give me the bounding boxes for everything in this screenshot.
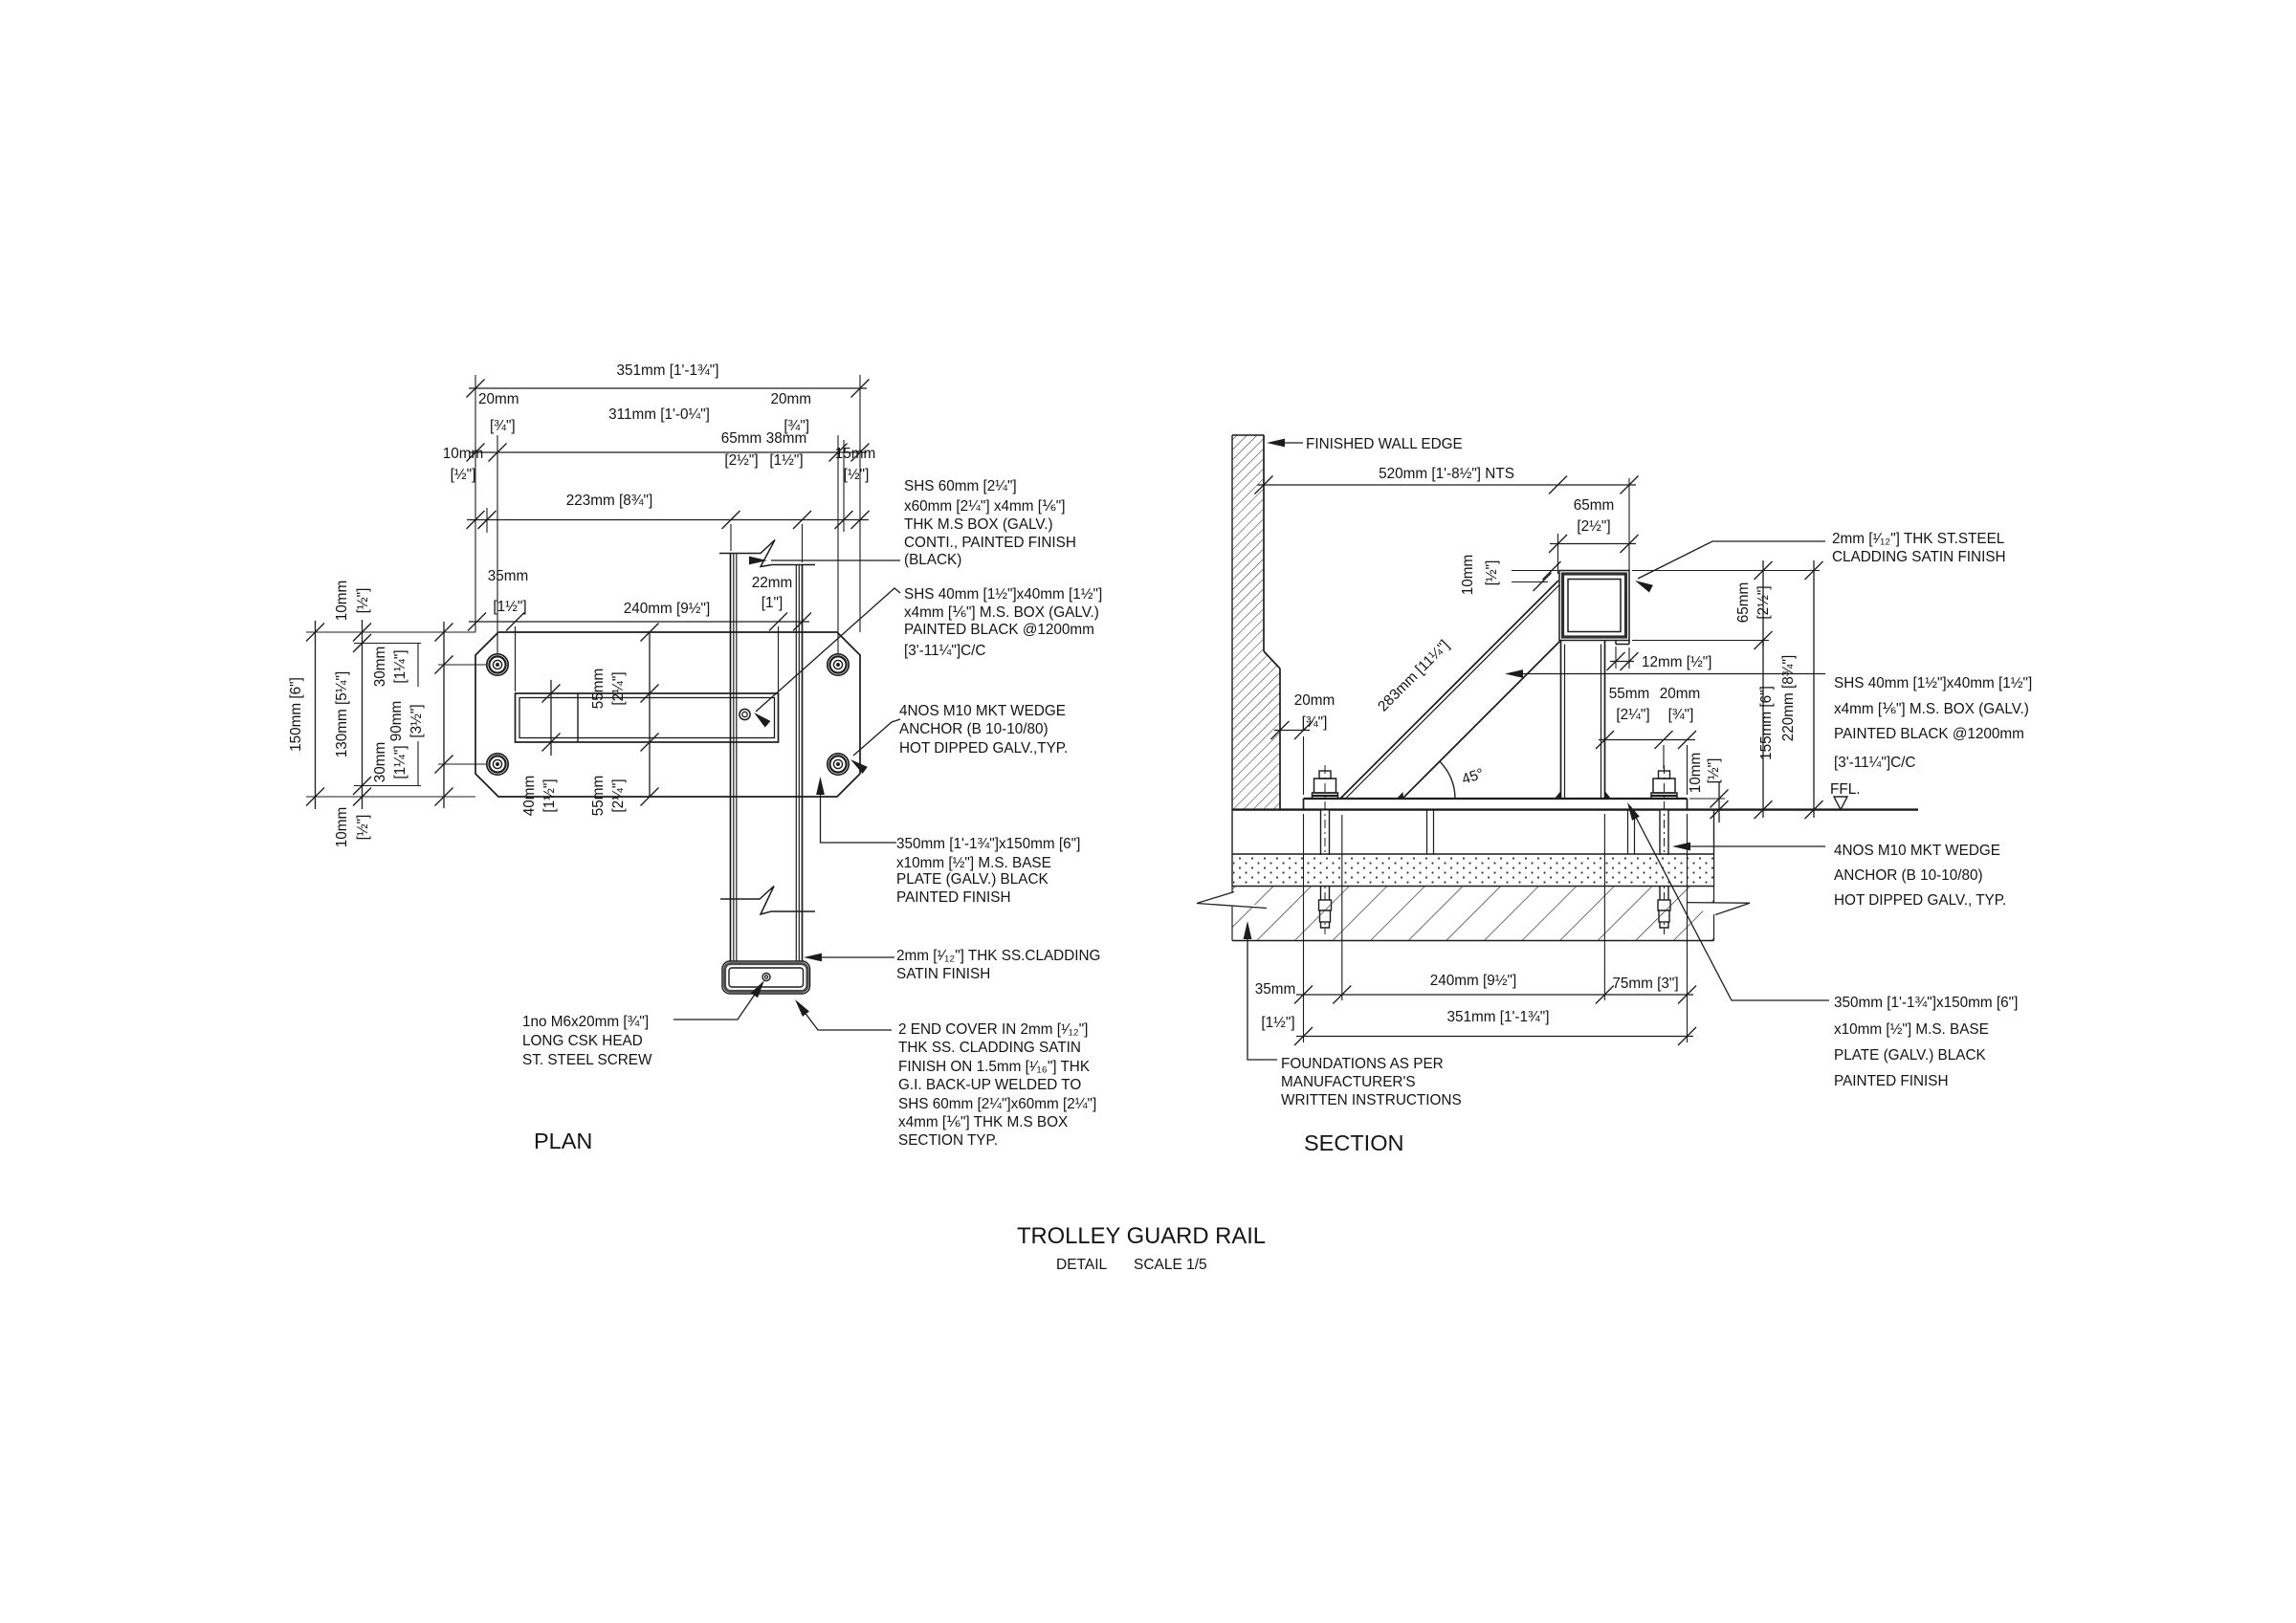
svg-text:220mm [8¾"]: 220mm [8¾"]: [1780, 655, 1797, 741]
svg-text:[¾"]: [¾"]: [1302, 714, 1328, 731]
svg-text:THK M.S BOX (GALV.): THK M.S BOX (GALV.): [904, 516, 1053, 533]
svg-text:SHS 40mm [1½"]x40mm [1½"]: SHS 40mm [1½"]x40mm [1½"]: [1834, 675, 2032, 691]
svg-text:[3'-11¼"]C/C: [3'-11¼"]C/C: [904, 643, 985, 659]
svg-text:30mm: 30mm: [372, 647, 388, 688]
svg-text:[½"]: [½"]: [451, 467, 476, 483]
svg-text:[½"]: [½"]: [1706, 758, 1722, 784]
svg-text:[½"]: [½"]: [1484, 560, 1500, 586]
svg-text:LONG CSK HEAD: LONG CSK HEAD: [522, 1033, 643, 1049]
svg-text:FINISH ON 1.5mm [¹⁄₁₆"] THK: FINISH ON 1.5mm [¹⁄₁₆"] THK: [898, 1059, 1091, 1075]
svg-text:351mm [1'-1¾"]: 351mm [1'-1¾"]: [1447, 1009, 1550, 1025]
svg-text:[1½"]: [1½"]: [541, 779, 558, 812]
svg-text:35mm: 35mm: [1255, 981, 1296, 998]
svg-text:PAINTED BLACK @1200mm: PAINTED BLACK @1200mm: [904, 622, 1094, 638]
svg-text:20mm: 20mm: [1294, 692, 1336, 709]
svg-text:10mm: 10mm: [334, 807, 350, 848]
svg-text:130mm [5¼"]: 130mm [5¼"]: [334, 671, 350, 757]
svg-text:350mm [1'-1¾"]x150mm [6"]: 350mm [1'-1¾"]x150mm [6"]: [1834, 995, 2018, 1011]
svg-text:[3½"]: [3½"]: [408, 704, 425, 737]
svg-text:520mm [1'-8½"] NTS: 520mm [1'-8½"] NTS: [1379, 466, 1514, 482]
svg-text:THK SS. CLADDING SATIN: THK SS. CLADDING SATIN: [898, 1040, 1081, 1056]
svg-text:1no M6x20mm [¾"]: 1no M6x20mm [¾"]: [522, 1014, 649, 1030]
svg-text:HOT DIPPED GALV., TYP.: HOT DIPPED GALV., TYP.: [1834, 892, 2006, 909]
svg-text:150mm [6"]: 150mm [6"]: [288, 677, 304, 752]
svg-text:MANUFACTURER'S: MANUFACTURER'S: [1281, 1074, 1416, 1090]
svg-text:[1¼"]: [1¼"]: [392, 649, 408, 683]
svg-text:TROLLEY GUARD RAIL: TROLLEY GUARD RAIL: [1017, 1223, 1266, 1249]
svg-text:ANCHOR (B 10-10/80): ANCHOR (B 10-10/80): [1834, 867, 1983, 884]
svg-text:SECTION: SECTION: [1304, 1130, 1403, 1155]
svg-text:2mm [¹⁄₁₂"] THK ST.STEEL: 2mm [¹⁄₁₂"] THK ST.STEEL: [1832, 531, 2004, 547]
svg-text:x60mm [2¼"] x4mm [⅙"]: x60mm [2¼"] x4mm [⅙"]: [904, 498, 1066, 515]
svg-text:PLATE (GALV.) BLACK: PLATE (GALV.) BLACK: [896, 871, 1049, 888]
svg-text:HOT DIPPED GALV.,TYP.: HOT DIPPED GALV.,TYP.: [899, 740, 1068, 757]
svg-text:30mm: 30mm: [372, 742, 388, 783]
svg-text:x4mm [⅙"] THK M.S BOX: x4mm [⅙"] THK M.S BOX: [898, 1114, 1068, 1130]
svg-text:12mm [½"]: 12mm [½"]: [1642, 654, 1711, 670]
svg-text:[½"]: [½"]: [844, 467, 870, 483]
svg-text:PLATE (GALV.) BLACK: PLATE (GALV.) BLACK: [1834, 1047, 1986, 1064]
svg-text:20mm: 20mm: [478, 391, 519, 407]
svg-text:[1"]: [1"]: [762, 595, 783, 611]
svg-text:[1½"]: [1½"]: [769, 452, 803, 469]
svg-text:10mm: 10mm: [334, 581, 350, 622]
svg-text:G.I. BACK-UP WELDED TO: G.I. BACK-UP WELDED TO: [898, 1077, 1081, 1093]
svg-text:45°: 45°: [1460, 765, 1486, 787]
svg-text:FOUNDATIONS AS PER: FOUNDATIONS AS PER: [1281, 1056, 1444, 1072]
svg-text:38mm: 38mm: [766, 430, 807, 447]
svg-text:75mm [3"]: 75mm [3"]: [1612, 976, 1678, 992]
svg-text:[¾"]: [¾"]: [1668, 707, 1694, 723]
svg-text:240mm [9½"]: 240mm [9½"]: [624, 601, 710, 617]
svg-text:311mm [1'-0¼"]: 311mm [1'-0¼"]: [608, 406, 710, 423]
svg-text:350mm [1'-1¾"]x150mm [6"]: 350mm [1'-1¾"]x150mm [6"]: [896, 836, 1080, 852]
svg-text:FFL.: FFL.: [1830, 781, 1860, 798]
svg-text:x10mm [½"] M.S. BASE: x10mm [½"] M.S. BASE: [896, 855, 1051, 871]
svg-text:CLADDING SATIN FINISH: CLADDING SATIN FINISH: [1832, 549, 2006, 565]
svg-text:90mm: 90mm: [388, 701, 405, 742]
svg-text:[2¼"]: [2¼"]: [610, 671, 627, 705]
svg-text:20mm: 20mm: [1660, 686, 1701, 702]
svg-text:x4mm [⅙"] M.S. BOX (GALV.): x4mm [⅙"] M.S. BOX (GALV.): [904, 604, 1099, 621]
svg-text:4NOS M10 MKT WEDGE: 4NOS M10 MKT WEDGE: [1834, 843, 2000, 859]
svg-text:FINISHED WALL EDGE: FINISHED WALL EDGE: [1306, 436, 1463, 452]
svg-text:10mm: 10mm: [1688, 753, 1704, 794]
svg-text:2mm [¹⁄₁₂"] THK SS.CLADDING: 2mm [¹⁄₁₂"] THK SS.CLADDING: [896, 948, 1100, 964]
svg-text:20mm: 20mm: [771, 391, 812, 407]
svg-text:SECTION TYP.: SECTION TYP.: [898, 1132, 998, 1149]
svg-text:351mm [1'-1¾"]: 351mm [1'-1¾"]: [617, 362, 719, 379]
svg-text:(BLACK): (BLACK): [904, 552, 961, 568]
svg-text:65mm: 65mm: [1735, 582, 1752, 624]
svg-text:[3'-11¼"]C/C: [3'-11¼"]C/C: [1834, 755, 1915, 771]
svg-text:65mm: 65mm: [1574, 497, 1615, 514]
svg-text:223mm [8¾"]: 223mm [8¾"]: [566, 493, 652, 509]
svg-text:PAINTED FINISH: PAINTED FINISH: [1834, 1073, 1949, 1089]
svg-text:4NOS M10 MKT WEDGE: 4NOS M10 MKT WEDGE: [899, 703, 1066, 719]
svg-text:22mm: 22mm: [752, 575, 793, 591]
svg-text:SHS 60mm [2¼"]x60mm [2¼"]: SHS 60mm [2¼"]x60mm [2¼"]: [898, 1096, 1096, 1112]
svg-text:10mm: 10mm: [443, 446, 484, 462]
svg-text:CONTI., PAINTED FINISH: CONTI., PAINTED FINISH: [904, 535, 1076, 551]
svg-text:[2¼"]: [2¼"]: [610, 779, 627, 812]
svg-text:55mm: 55mm: [590, 669, 607, 710]
svg-text:[½"]: [½"]: [355, 588, 371, 614]
svg-text:PLAN: PLAN: [534, 1129, 592, 1153]
svg-text:[2½"]: [2½"]: [724, 452, 758, 469]
svg-text:SATIN FINISH: SATIN FINISH: [896, 966, 990, 982]
svg-text:35mm: 35mm: [488, 568, 529, 584]
svg-text:155mm [6"]: 155mm [6"]: [1758, 686, 1775, 760]
svg-text:2 END COVER IN 2mm [¹⁄₁₂"]: 2 END COVER IN 2mm [¹⁄₁₂"]: [898, 1021, 1088, 1038]
svg-text:PAINTED FINISH: PAINTED FINISH: [896, 889, 1011, 906]
svg-text:40mm: 40mm: [521, 776, 538, 817]
svg-text:[1¼"]: [1¼"]: [392, 745, 408, 779]
svg-text:[1½"]: [1½"]: [1261, 1015, 1294, 1031]
svg-text:DETAIL: DETAIL: [1056, 1257, 1107, 1273]
svg-text:[1½"]: [1½"]: [493, 599, 526, 615]
svg-text:ANCHOR (B 10-10/80): ANCHOR (B 10-10/80): [899, 721, 1049, 737]
svg-text:ST. STEEL SCREW: ST. STEEL SCREW: [522, 1052, 652, 1068]
svg-text:[¾"]: [¾"]: [490, 418, 516, 434]
svg-text:[½"]: [½"]: [355, 815, 371, 841]
svg-text:65mm: 65mm: [721, 430, 762, 447]
svg-text:[2¼"]: [2¼"]: [1616, 707, 1649, 723]
svg-text:SHS 40mm [1½"]x40mm [1½"]: SHS 40mm [1½"]x40mm [1½"]: [904, 586, 1102, 603]
svg-text:x4mm [⅙"] M.S. BOX (GALV.): x4mm [⅙"] M.S. BOX (GALV.): [1834, 701, 2029, 717]
svg-text:15mm: 15mm: [835, 446, 876, 462]
svg-text:[2½"]: [2½"]: [1577, 518, 1610, 535]
svg-text:x10mm [½"] M.S. BASE: x10mm [½"] M.S. BASE: [1834, 1021, 1989, 1038]
svg-text:240mm [9½"]: 240mm [9½"]: [1430, 973, 1516, 989]
svg-text:[2½"]: [2½"]: [1755, 585, 1772, 619]
svg-text:SCALE 1/5: SCALE 1/5: [1134, 1257, 1207, 1273]
svg-text:SHS 60mm [2¼"]: SHS 60mm [2¼"]: [904, 478, 1017, 494]
svg-text:55mm: 55mm: [1609, 686, 1650, 702]
svg-text:PAINTED BLACK @1200mm: PAINTED BLACK @1200mm: [1834, 726, 2024, 742]
svg-text:55mm: 55mm: [590, 776, 607, 817]
svg-text:WRITTEN INSTRUCTIONS: WRITTEN INSTRUCTIONS: [1281, 1092, 1462, 1108]
svg-text:10mm: 10mm: [1460, 555, 1476, 596]
